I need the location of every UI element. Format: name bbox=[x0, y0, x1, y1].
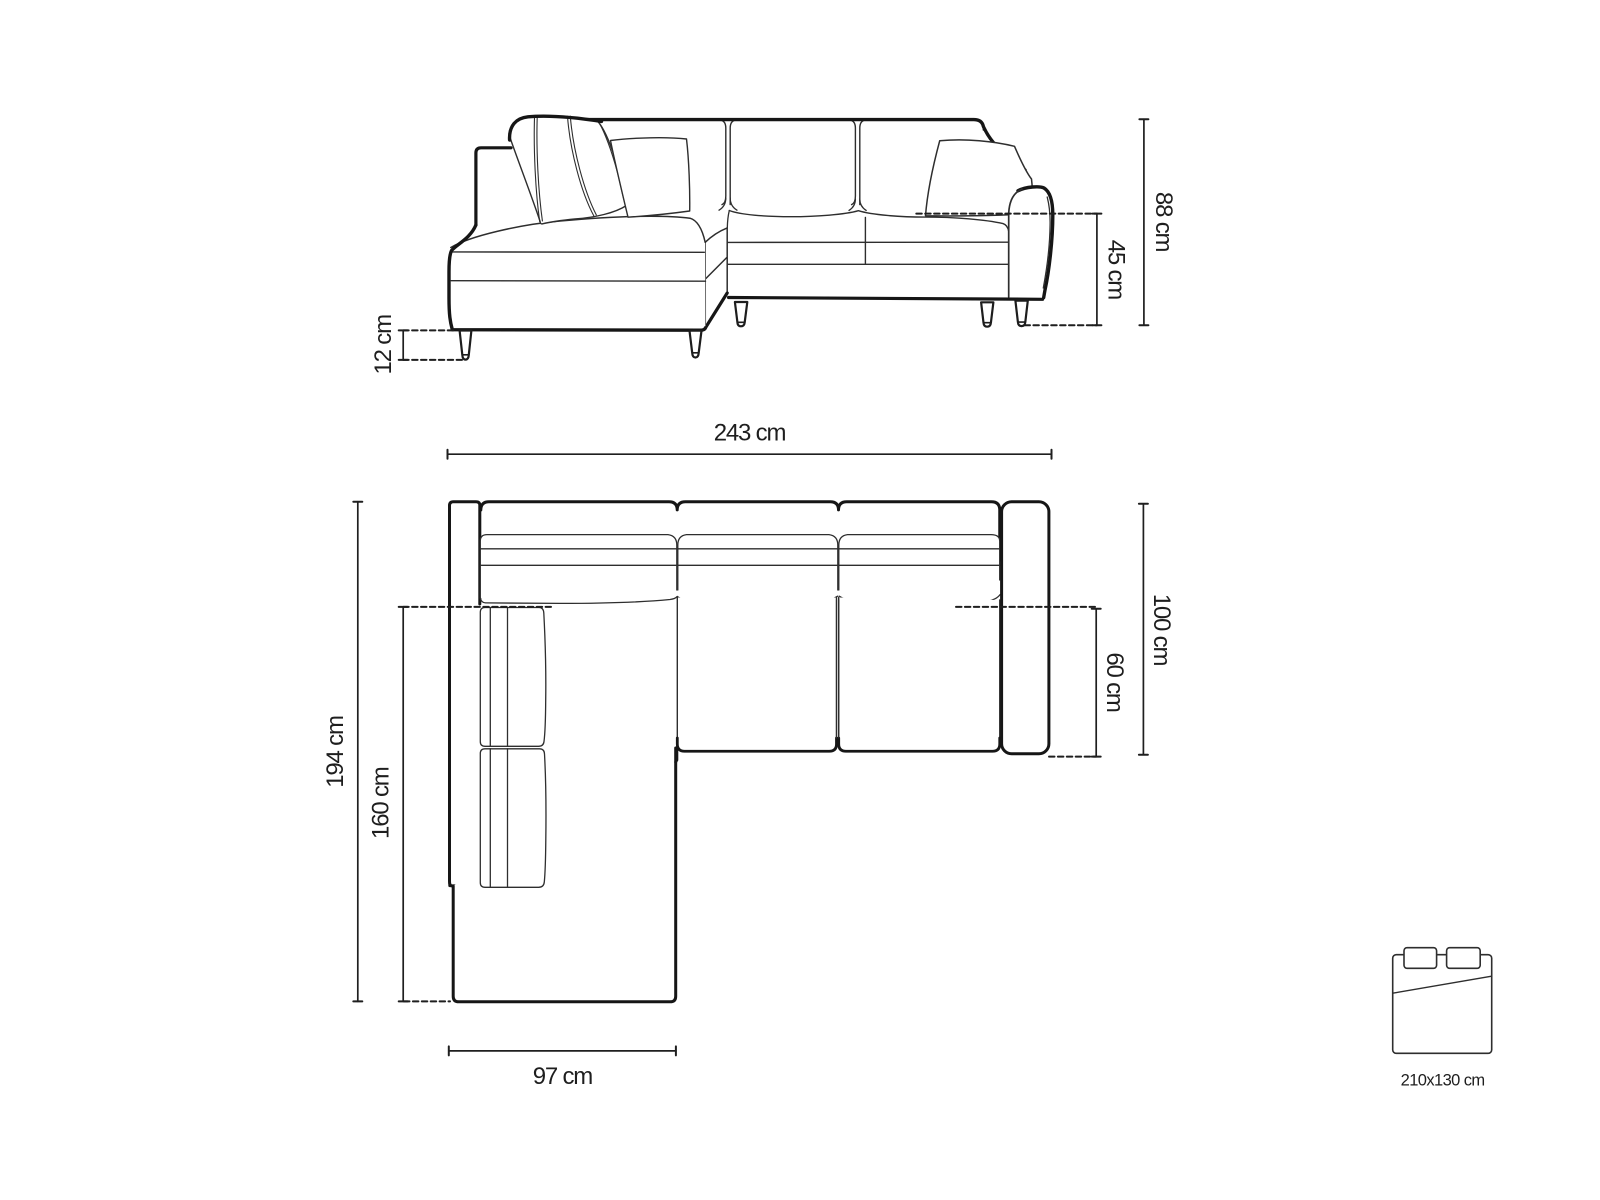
svg-text:194 cm: 194 cm bbox=[322, 716, 349, 788]
svg-text:160 cm: 160 cm bbox=[367, 767, 394, 839]
svg-text:210x130 cm: 210x130 cm bbox=[1401, 1072, 1485, 1090]
svg-text:97 cm: 97 cm bbox=[533, 1063, 593, 1090]
svg-text:12 cm: 12 cm bbox=[370, 315, 397, 375]
svg-text:243 cm: 243 cm bbox=[714, 419, 786, 446]
svg-text:88 cm: 88 cm bbox=[1150, 192, 1177, 252]
svg-text:45 cm: 45 cm bbox=[1103, 240, 1130, 300]
svg-text:60 cm: 60 cm bbox=[1101, 652, 1128, 712]
svg-text:100 cm: 100 cm bbox=[1148, 594, 1175, 666]
